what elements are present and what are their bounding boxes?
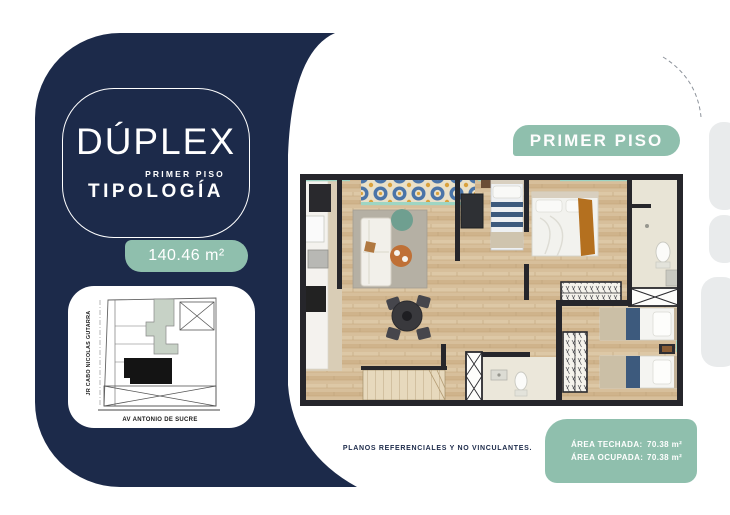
total-area-badge: 140.46 m² xyxy=(125,240,248,272)
bathroom-2 xyxy=(482,357,556,401)
area-techada-value: 70.38 m² xyxy=(647,438,682,451)
wardrobe xyxy=(461,194,483,228)
decorative-arc-line xyxy=(663,57,701,117)
disclaimer-text: PLANOS REFERENCIALES Y NO VINCULANTES. xyxy=(340,445,535,452)
street-label-vertical: JR CABO NICOLAS GUTARRA xyxy=(86,311,92,396)
area-ocupada-row: ÁREA OCUPADA: 70.38 m² xyxy=(571,451,697,464)
site-crossed-lot xyxy=(180,302,214,330)
site-map-card: JR CABO NICOLAS GUTARRA AV ANTONIO DE SU… xyxy=(68,286,255,428)
kitchen-stove xyxy=(309,184,331,212)
twin-bed-b xyxy=(600,356,680,388)
floor-plan xyxy=(295,168,685,408)
toilet xyxy=(656,242,670,262)
toilet xyxy=(515,372,527,390)
edge-tab xyxy=(709,215,730,263)
right-edge-tabs xyxy=(701,122,730,367)
area-ocupada-value: 70.38 m² xyxy=(647,451,682,464)
edge-tab xyxy=(701,277,730,367)
twin-bed-a xyxy=(600,308,680,340)
kitchen xyxy=(303,177,342,371)
duplex-title: DÚPLEX xyxy=(76,123,236,160)
accent-chair xyxy=(391,209,413,231)
linen-closet xyxy=(629,288,681,306)
site-adjacent-building xyxy=(146,299,178,354)
kitchen-oven xyxy=(304,286,326,312)
street-label-horizontal: AV ANTONIO DE SUCRE xyxy=(122,417,197,423)
floor-badge: PRIMER PISO xyxy=(513,125,680,156)
master-bed xyxy=(532,192,598,256)
brochure-page: DÚPLEX PRIMER PISO TIPOLOGÍA 140.46 m² xyxy=(0,0,730,515)
duplex-subtitle-floor: PRIMER PISO xyxy=(87,169,225,179)
vanity xyxy=(666,270,678,286)
area-techada-row: ÁREA TECHADA: 70.38 m² xyxy=(571,438,697,451)
site-crossed-strip xyxy=(104,386,216,406)
kitchen-sink xyxy=(308,250,328,268)
living-room xyxy=(353,209,427,288)
area-ocupada-label: ÁREA OCUPADA: xyxy=(571,451,647,464)
site-project-footprint xyxy=(124,358,172,384)
kitchen-fridge xyxy=(304,216,324,242)
edge-tab xyxy=(709,122,730,210)
coffee-table xyxy=(390,245,412,267)
area-info-box: ÁREA TECHADA: 70.38 m² ÁREA OCUPADA: 70.… xyxy=(545,419,697,483)
site-map: JR CABO NICOLAS GUTARRA AV ANTONIO DE SU… xyxy=(68,286,255,428)
duct-shaft xyxy=(466,352,482,401)
typology-title-box: DÚPLEX PRIMER PISO TIPOLOGÍA xyxy=(62,88,250,238)
duplex-subtitle-typology: TIPOLOGÍA xyxy=(81,181,231,203)
area-techada-label: ÁREA TECHADA: xyxy=(571,438,647,451)
single-bed xyxy=(491,178,523,250)
sofa-pillow xyxy=(364,241,376,253)
bathroom-1 xyxy=(629,179,678,306)
